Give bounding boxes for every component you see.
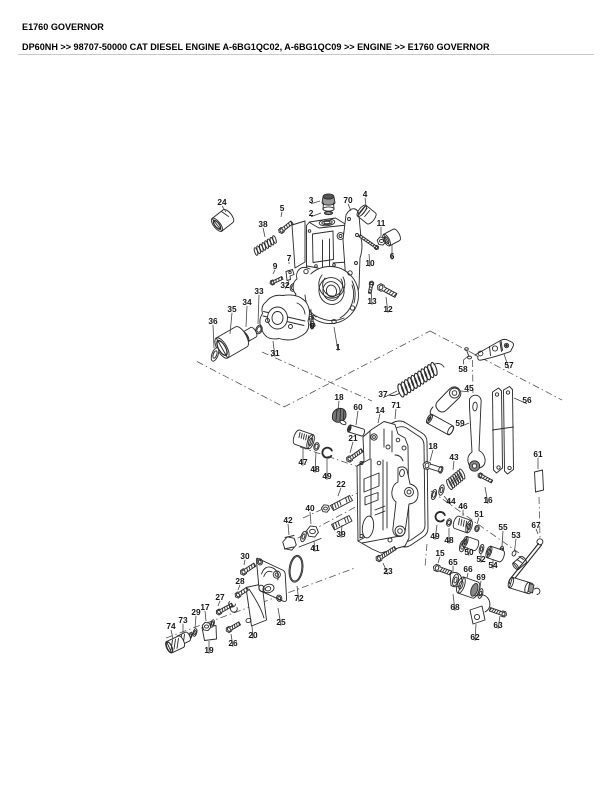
svg-text:29: 29 xyxy=(191,607,201,617)
svg-text:67: 67 xyxy=(531,520,541,530)
svg-text:38: 38 xyxy=(258,219,268,229)
svg-text:2: 2 xyxy=(309,208,314,218)
svg-text:42: 42 xyxy=(283,515,293,525)
svg-text:41: 41 xyxy=(310,543,320,553)
svg-text:52: 52 xyxy=(476,554,486,564)
svg-text:30: 30 xyxy=(240,551,250,561)
svg-text:8: 8 xyxy=(310,321,315,331)
svg-text:31: 31 xyxy=(270,348,280,358)
svg-text:74: 74 xyxy=(166,621,176,631)
svg-text:60: 60 xyxy=(353,402,363,412)
svg-text:3: 3 xyxy=(309,195,314,205)
svg-text:68: 68 xyxy=(450,602,460,612)
svg-text:55: 55 xyxy=(498,522,508,532)
svg-text:45: 45 xyxy=(464,383,474,393)
svg-text:65: 65 xyxy=(448,557,458,567)
svg-text:20: 20 xyxy=(248,630,258,640)
svg-text:36: 36 xyxy=(208,316,218,326)
svg-text:23: 23 xyxy=(383,566,393,576)
svg-text:17: 17 xyxy=(200,602,210,612)
svg-text:39: 39 xyxy=(336,529,346,539)
svg-text:18: 18 xyxy=(334,392,344,402)
svg-text:71: 71 xyxy=(391,400,401,410)
svg-text:63: 63 xyxy=(493,620,503,630)
svg-text:32: 32 xyxy=(280,280,290,290)
svg-text:73: 73 xyxy=(178,615,188,625)
svg-text:66: 66 xyxy=(463,564,473,574)
svg-text:27: 27 xyxy=(215,592,225,602)
svg-text:62: 62 xyxy=(470,632,480,642)
svg-text:25: 25 xyxy=(276,617,286,627)
svg-text:10: 10 xyxy=(365,258,375,268)
svg-text:47: 47 xyxy=(298,457,308,467)
svg-text:57: 57 xyxy=(504,360,514,370)
svg-text:6: 6 xyxy=(390,251,395,261)
svg-text:9: 9 xyxy=(273,261,278,271)
svg-text:53: 53 xyxy=(511,530,521,540)
svg-text:33: 33 xyxy=(254,286,264,296)
svg-text:48: 48 xyxy=(444,535,454,545)
svg-text:40: 40 xyxy=(305,503,315,513)
svg-text:16: 16 xyxy=(483,495,493,505)
svg-text:37: 37 xyxy=(378,389,388,399)
svg-text:18: 18 xyxy=(428,441,438,451)
svg-text:61: 61 xyxy=(533,449,543,459)
svg-text:19: 19 xyxy=(204,645,214,655)
svg-text:21: 21 xyxy=(348,433,358,443)
svg-text:26: 26 xyxy=(228,638,238,648)
svg-text:34: 34 xyxy=(242,297,252,307)
svg-text:22: 22 xyxy=(336,479,346,489)
svg-text:7: 7 xyxy=(287,253,292,263)
svg-text:49: 49 xyxy=(322,471,332,481)
svg-text:59: 59 xyxy=(455,418,465,428)
svg-text:1: 1 xyxy=(336,342,341,352)
svg-text:51: 51 xyxy=(474,509,484,519)
svg-text:44: 44 xyxy=(446,496,456,506)
svg-text:56: 56 xyxy=(522,395,532,405)
svg-text:15: 15 xyxy=(435,548,445,558)
svg-text:14: 14 xyxy=(375,405,385,415)
svg-text:28: 28 xyxy=(235,576,245,586)
svg-text:49: 49 xyxy=(430,531,440,541)
svg-text:11: 11 xyxy=(377,218,386,228)
svg-text:70: 70 xyxy=(343,195,353,205)
svg-text:12: 12 xyxy=(383,304,393,314)
svg-text:72: 72 xyxy=(294,593,304,603)
svg-text:24: 24 xyxy=(217,197,227,207)
svg-text:50: 50 xyxy=(464,547,474,557)
svg-text:58: 58 xyxy=(458,364,468,374)
svg-text:69: 69 xyxy=(476,572,486,582)
svg-text:43: 43 xyxy=(449,452,459,462)
svg-text:48: 48 xyxy=(310,464,320,474)
svg-text:46: 46 xyxy=(458,501,468,511)
svg-text:5: 5 xyxy=(280,203,285,213)
svg-text:35: 35 xyxy=(227,304,237,314)
svg-text:54: 54 xyxy=(488,560,498,570)
svg-text:4: 4 xyxy=(363,189,368,199)
svg-text:13: 13 xyxy=(367,296,377,306)
